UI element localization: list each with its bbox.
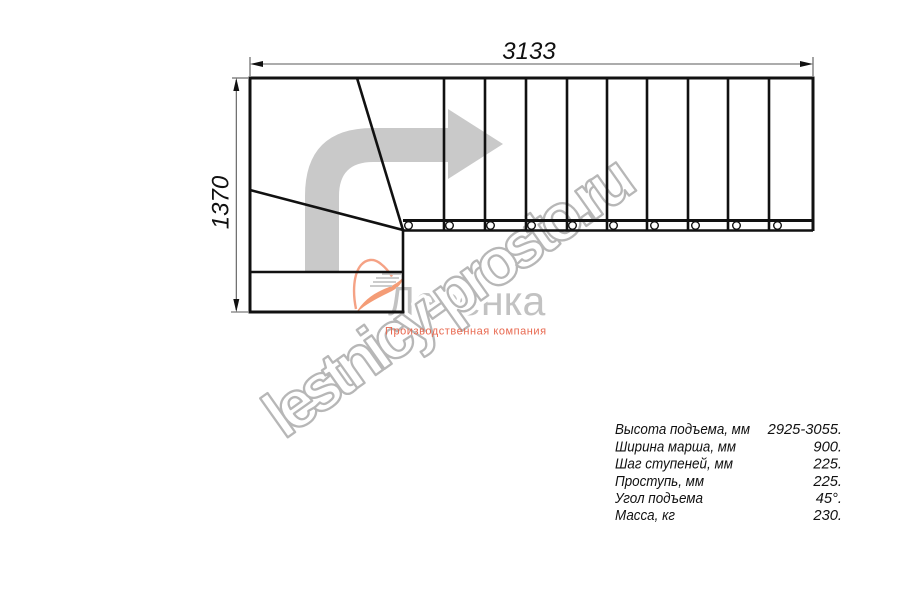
svg-text:2925-3055.: 2925-3055.	[767, 422, 842, 438]
svg-text:Шаг ступеней, мм: Шаг ступеней, мм	[615, 457, 733, 473]
svg-text:45°.: 45°.	[816, 491, 842, 507]
svg-text:Угол подъема: Угол подъема	[614, 491, 703, 507]
svg-text:1370: 1370	[208, 175, 235, 229]
svg-text:Проступь, мм: Проступь, мм	[615, 474, 704, 490]
svg-text:Производственная компания: Производственная компания	[385, 326, 547, 338]
svg-text:Масса, кг: Масса, кг	[615, 508, 675, 524]
svg-text:225.: 225.	[812, 474, 842, 490]
svg-text:3133: 3133	[502, 38, 556, 65]
svg-text:225.: 225.	[812, 457, 842, 473]
svg-text:230.: 230.	[812, 508, 842, 524]
svg-text:Ширина марша, мм: Ширина марша, мм	[615, 439, 736, 455]
svg-text:900.: 900.	[813, 439, 842, 455]
svg-text:Высота подъема, мм: Высота подъема, мм	[615, 422, 750, 438]
